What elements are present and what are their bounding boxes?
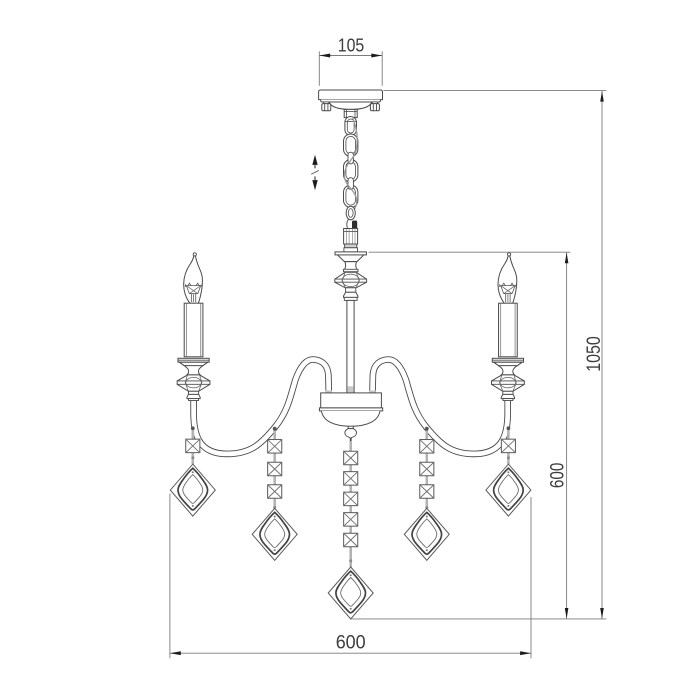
svg-text:600: 600 <box>336 633 366 654</box>
svg-text:105: 105 <box>338 36 365 56</box>
svg-text:600: 600 <box>548 463 569 489</box>
svg-text:1050: 1050 <box>584 336 605 372</box>
